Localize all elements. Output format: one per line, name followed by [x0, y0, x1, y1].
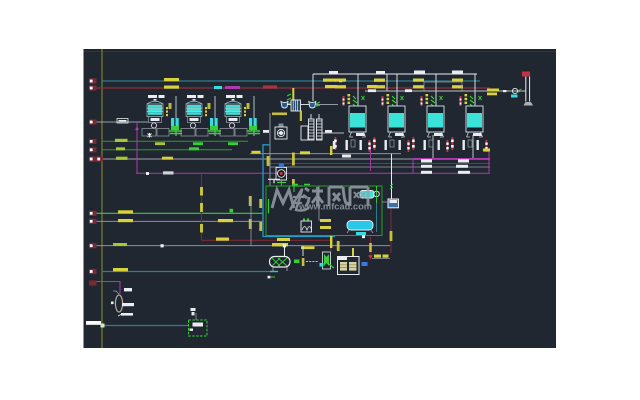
- svg-text:www.mfcad.com: www.mfcad.com: [298, 202, 372, 212]
